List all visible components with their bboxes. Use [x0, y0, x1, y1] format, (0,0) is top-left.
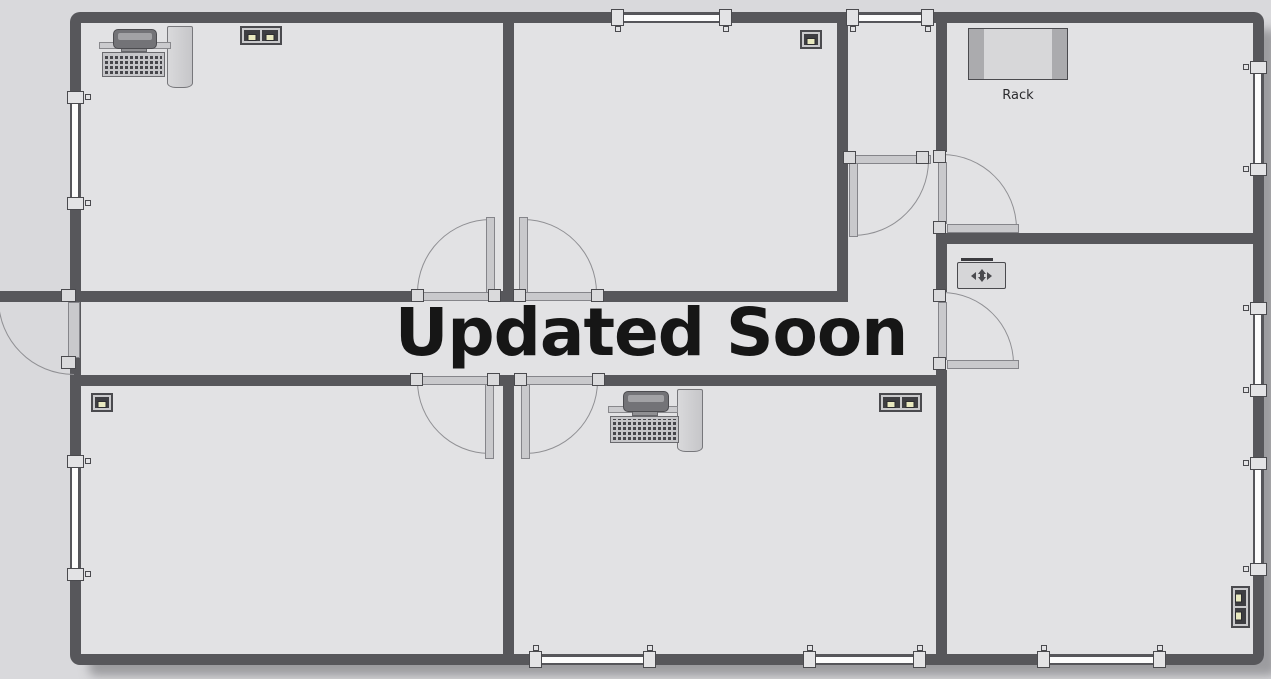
window-cap	[719, 9, 732, 26]
jack-port	[804, 34, 818, 45]
door-connector	[933, 221, 946, 234]
window-nub	[1243, 387, 1249, 393]
window-nub	[807, 645, 813, 651]
door-frame	[938, 162, 947, 224]
arrow-left-icon	[967, 272, 976, 280]
window	[535, 656, 650, 664]
floor-plan: Rack Updated Soon	[0, 0, 1271, 679]
window	[1254, 68, 1262, 168]
workstation	[600, 385, 705, 457]
window-cap	[67, 568, 84, 581]
window-cap	[1250, 384, 1267, 397]
jack-port	[902, 397, 919, 408]
computer-tower-icon	[677, 389, 703, 452]
window-cap	[67, 91, 84, 104]
window-cap	[1250, 61, 1267, 74]
window-nub	[533, 645, 539, 651]
jack-port	[262, 30, 278, 41]
window-cap	[67, 455, 84, 468]
window	[809, 656, 920, 664]
window-nub	[1041, 645, 1047, 651]
network-jack-double-icon	[879, 393, 922, 412]
door-connector	[933, 357, 946, 370]
window-cap	[1250, 457, 1267, 470]
door-connector	[514, 373, 527, 386]
network-jack-double-icon	[240, 26, 282, 45]
interior-wall	[81, 375, 416, 386]
workstation	[95, 20, 195, 90]
window-nub	[850, 26, 856, 32]
arrow-right-icon	[987, 272, 996, 280]
door-connector	[592, 373, 605, 386]
window	[71, 97, 79, 202]
keyboard-icon	[102, 52, 165, 77]
window-cap	[803, 651, 816, 668]
window-nub	[647, 645, 653, 651]
window-nub	[85, 571, 91, 577]
door-connector	[843, 151, 856, 164]
overlay-text: Updated Soon	[395, 294, 907, 371]
window-cap	[1153, 651, 1166, 668]
window-nub	[1243, 166, 1249, 172]
window-nub	[723, 26, 729, 32]
door-frame	[938, 302, 947, 360]
window-cap	[1250, 302, 1267, 315]
window-cap	[846, 9, 859, 26]
window-nub	[1243, 64, 1249, 70]
window	[1254, 309, 1262, 389]
computer-tower-icon	[167, 26, 193, 88]
junction-box-cable	[961, 258, 993, 261]
door-leaf	[519, 217, 528, 293]
jack-port	[95, 397, 109, 408]
door-connector	[933, 289, 946, 302]
rack-rail	[1052, 29, 1067, 79]
window-nub	[925, 26, 931, 32]
window-cap	[921, 9, 934, 26]
door-leaf	[486, 217, 495, 293]
jack-port	[244, 30, 260, 41]
door-frame	[68, 302, 80, 358]
door-frame	[416, 376, 494, 385]
door-leaf	[947, 224, 1019, 233]
rack-rail	[969, 29, 984, 79]
monitor-icon	[623, 391, 669, 412]
network-jack-single-icon	[800, 30, 822, 49]
network-jack-double-vertical-icon	[1231, 586, 1250, 628]
door-connector	[410, 373, 423, 386]
door-connector	[933, 150, 946, 163]
door-leaf	[521, 384, 530, 459]
door-connector	[916, 151, 929, 164]
jack-port	[1235, 590, 1246, 606]
network-jack-single-icon	[91, 393, 113, 412]
monitor-icon	[113, 29, 157, 49]
window-cap	[1250, 563, 1267, 576]
rack	[968, 28, 1068, 80]
window-nub	[85, 94, 91, 100]
arrow-up-icon	[978, 265, 986, 274]
window-cap	[1037, 651, 1050, 668]
window	[615, 14, 725, 22]
window-nub	[1243, 305, 1249, 311]
window-nub	[917, 645, 923, 651]
window-cap	[1250, 163, 1267, 176]
window-nub	[1157, 645, 1163, 651]
window-nub	[85, 200, 91, 206]
window	[1043, 656, 1160, 664]
window-cap	[529, 651, 542, 668]
door-connector	[61, 289, 76, 302]
door-leaf	[485, 384, 494, 459]
rack-label: Rack	[1002, 88, 1033, 103]
window-nub	[1243, 460, 1249, 466]
window	[850, 14, 928, 22]
window	[71, 461, 79, 574]
door-frame	[520, 376, 598, 385]
window-cap	[643, 651, 656, 668]
keyboard-icon	[610, 416, 679, 443]
jack-port	[883, 397, 900, 408]
door-connector	[487, 373, 500, 386]
door-leaf	[947, 360, 1019, 369]
window-nub	[615, 26, 621, 32]
window	[1254, 464, 1262, 569]
window-cap	[67, 197, 84, 210]
arrow-down-icon	[978, 277, 986, 286]
jack-port	[1235, 608, 1246, 624]
door-connector	[61, 356, 76, 369]
window-cap	[913, 651, 926, 668]
window-nub	[85, 458, 91, 464]
junction-box-icon	[957, 262, 1006, 289]
junction-center-dot	[980, 274, 984, 278]
door-leaf	[849, 163, 858, 237]
interior-wall	[936, 23, 947, 152]
window-cap	[611, 9, 624, 26]
window-nub	[1243, 566, 1249, 572]
